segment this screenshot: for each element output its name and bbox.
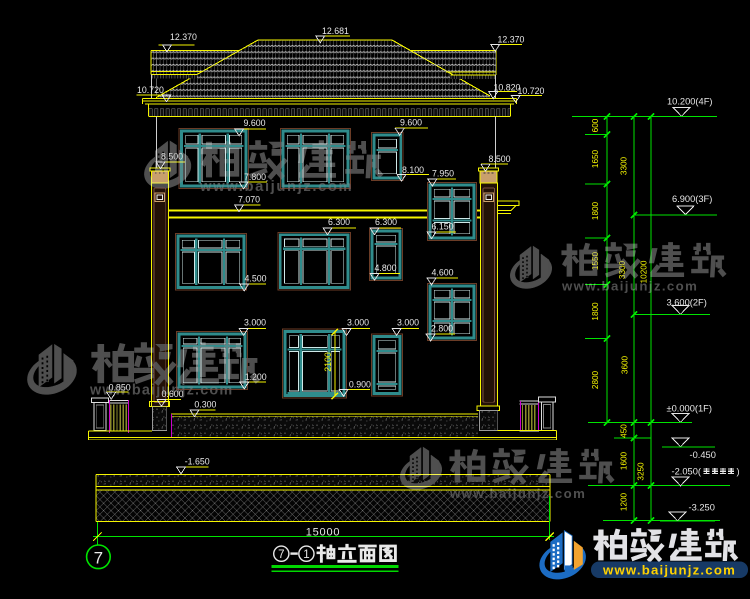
svg-text:0.300: 0.300 bbox=[194, 399, 216, 409]
svg-text:0.900: 0.900 bbox=[349, 380, 371, 390]
svg-text:6.150: 6.150 bbox=[432, 221, 454, 231]
svg-text:-1.650: -1.650 bbox=[185, 456, 210, 466]
svg-text:8.100: 8.100 bbox=[402, 165, 424, 175]
svg-text:9.600: 9.600 bbox=[400, 117, 422, 127]
svg-text:3300: 3300 bbox=[620, 156, 629, 175]
svg-text:1800: 1800 bbox=[591, 302, 600, 321]
svg-text:7: 7 bbox=[278, 549, 284, 561]
svg-text:www.baijunjz.com: www.baijunjz.com bbox=[199, 179, 353, 195]
svg-text:6.300: 6.300 bbox=[328, 217, 350, 227]
svg-text:3.000: 3.000 bbox=[244, 317, 266, 327]
svg-text:4.500: 4.500 bbox=[245, 274, 267, 284]
svg-text:-2.050(: -2.050( bbox=[672, 466, 702, 476]
svg-text:www.baijunjz.com: www.baijunjz.com bbox=[602, 563, 736, 578]
svg-text:1: 1 bbox=[303, 549, 309, 561]
svg-text:10.720: 10.720 bbox=[137, 85, 164, 95]
svg-text:2800: 2800 bbox=[591, 370, 600, 389]
svg-text:600: 600 bbox=[591, 118, 600, 132]
svg-text:12.681: 12.681 bbox=[322, 26, 349, 36]
svg-text:6.900(3F): 6.900(3F) bbox=[672, 194, 712, 204]
svg-text:7.950: 7.950 bbox=[432, 168, 454, 178]
svg-text:±0.000(1F): ±0.000(1F) bbox=[667, 403, 712, 413]
svg-text:3600: 3600 bbox=[621, 355, 630, 374]
svg-text:): ) bbox=[737, 466, 740, 476]
svg-text:1600: 1600 bbox=[620, 451, 629, 470]
svg-text:4.600: 4.600 bbox=[432, 267, 454, 277]
svg-text:12.370: 12.370 bbox=[498, 35, 525, 45]
svg-text:9.600: 9.600 bbox=[244, 118, 266, 128]
svg-text:6.300: 6.300 bbox=[375, 217, 397, 227]
svg-text:www.baijunjz.com: www.baijunjz.com bbox=[89, 383, 233, 399]
svg-text:4.800: 4.800 bbox=[375, 263, 397, 273]
svg-text:7.070: 7.070 bbox=[238, 194, 260, 204]
svg-text:10.200(4F): 10.200(4F) bbox=[667, 97, 712, 107]
svg-text:450: 450 bbox=[620, 424, 629, 438]
svg-text:-3.250: -3.250 bbox=[689, 502, 715, 512]
svg-text:www.baijunjz.com: www.baijunjz.com bbox=[561, 279, 698, 294]
svg-text:1200: 1200 bbox=[620, 492, 629, 511]
svg-text:3.000: 3.000 bbox=[347, 317, 369, 327]
svg-text:10.720: 10.720 bbox=[518, 86, 545, 96]
svg-text:12.370: 12.370 bbox=[170, 32, 197, 42]
svg-text:15000: 15000 bbox=[306, 527, 341, 539]
svg-text:2100: 2100 bbox=[323, 352, 333, 372]
svg-text:3250: 3250 bbox=[637, 462, 646, 481]
svg-text:1800: 1800 bbox=[591, 201, 600, 220]
svg-text:3.000: 3.000 bbox=[397, 317, 419, 327]
svg-text:www.baijunjz.com: www.baijunjz.com bbox=[449, 486, 586, 501]
svg-text:-0.450: -0.450 bbox=[690, 450, 716, 460]
svg-text:10.820: 10.820 bbox=[494, 83, 521, 93]
svg-text:2.800: 2.800 bbox=[431, 323, 453, 333]
svg-text:8.500: 8.500 bbox=[489, 154, 511, 164]
svg-text:1650: 1650 bbox=[591, 149, 600, 168]
svg-text:7: 7 bbox=[94, 549, 103, 568]
